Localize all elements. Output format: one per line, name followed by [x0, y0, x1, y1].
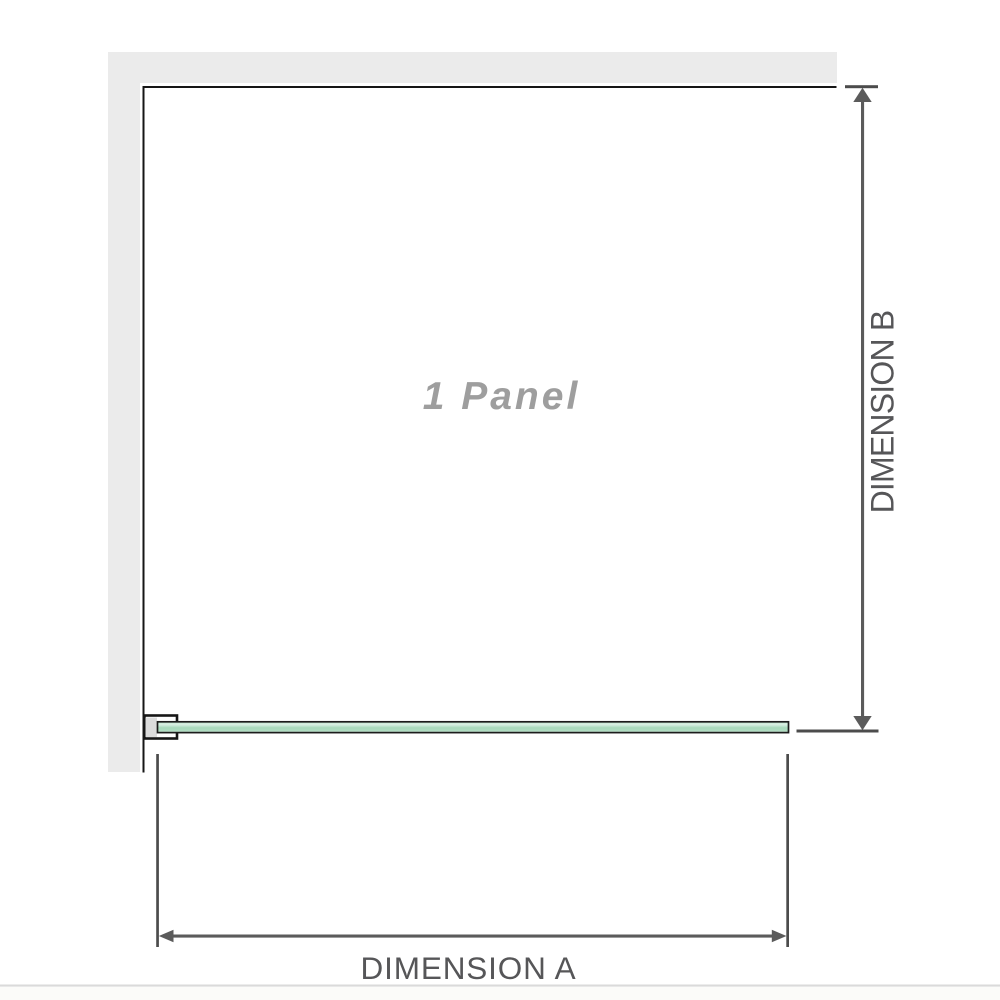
svg-text:DIMENSION B: DIMENSION B	[865, 311, 901, 514]
svg-text:1 Panel: 1 Panel	[423, 375, 581, 418]
svg-text:DIMENSION A: DIMENSION A	[361, 950, 577, 986]
